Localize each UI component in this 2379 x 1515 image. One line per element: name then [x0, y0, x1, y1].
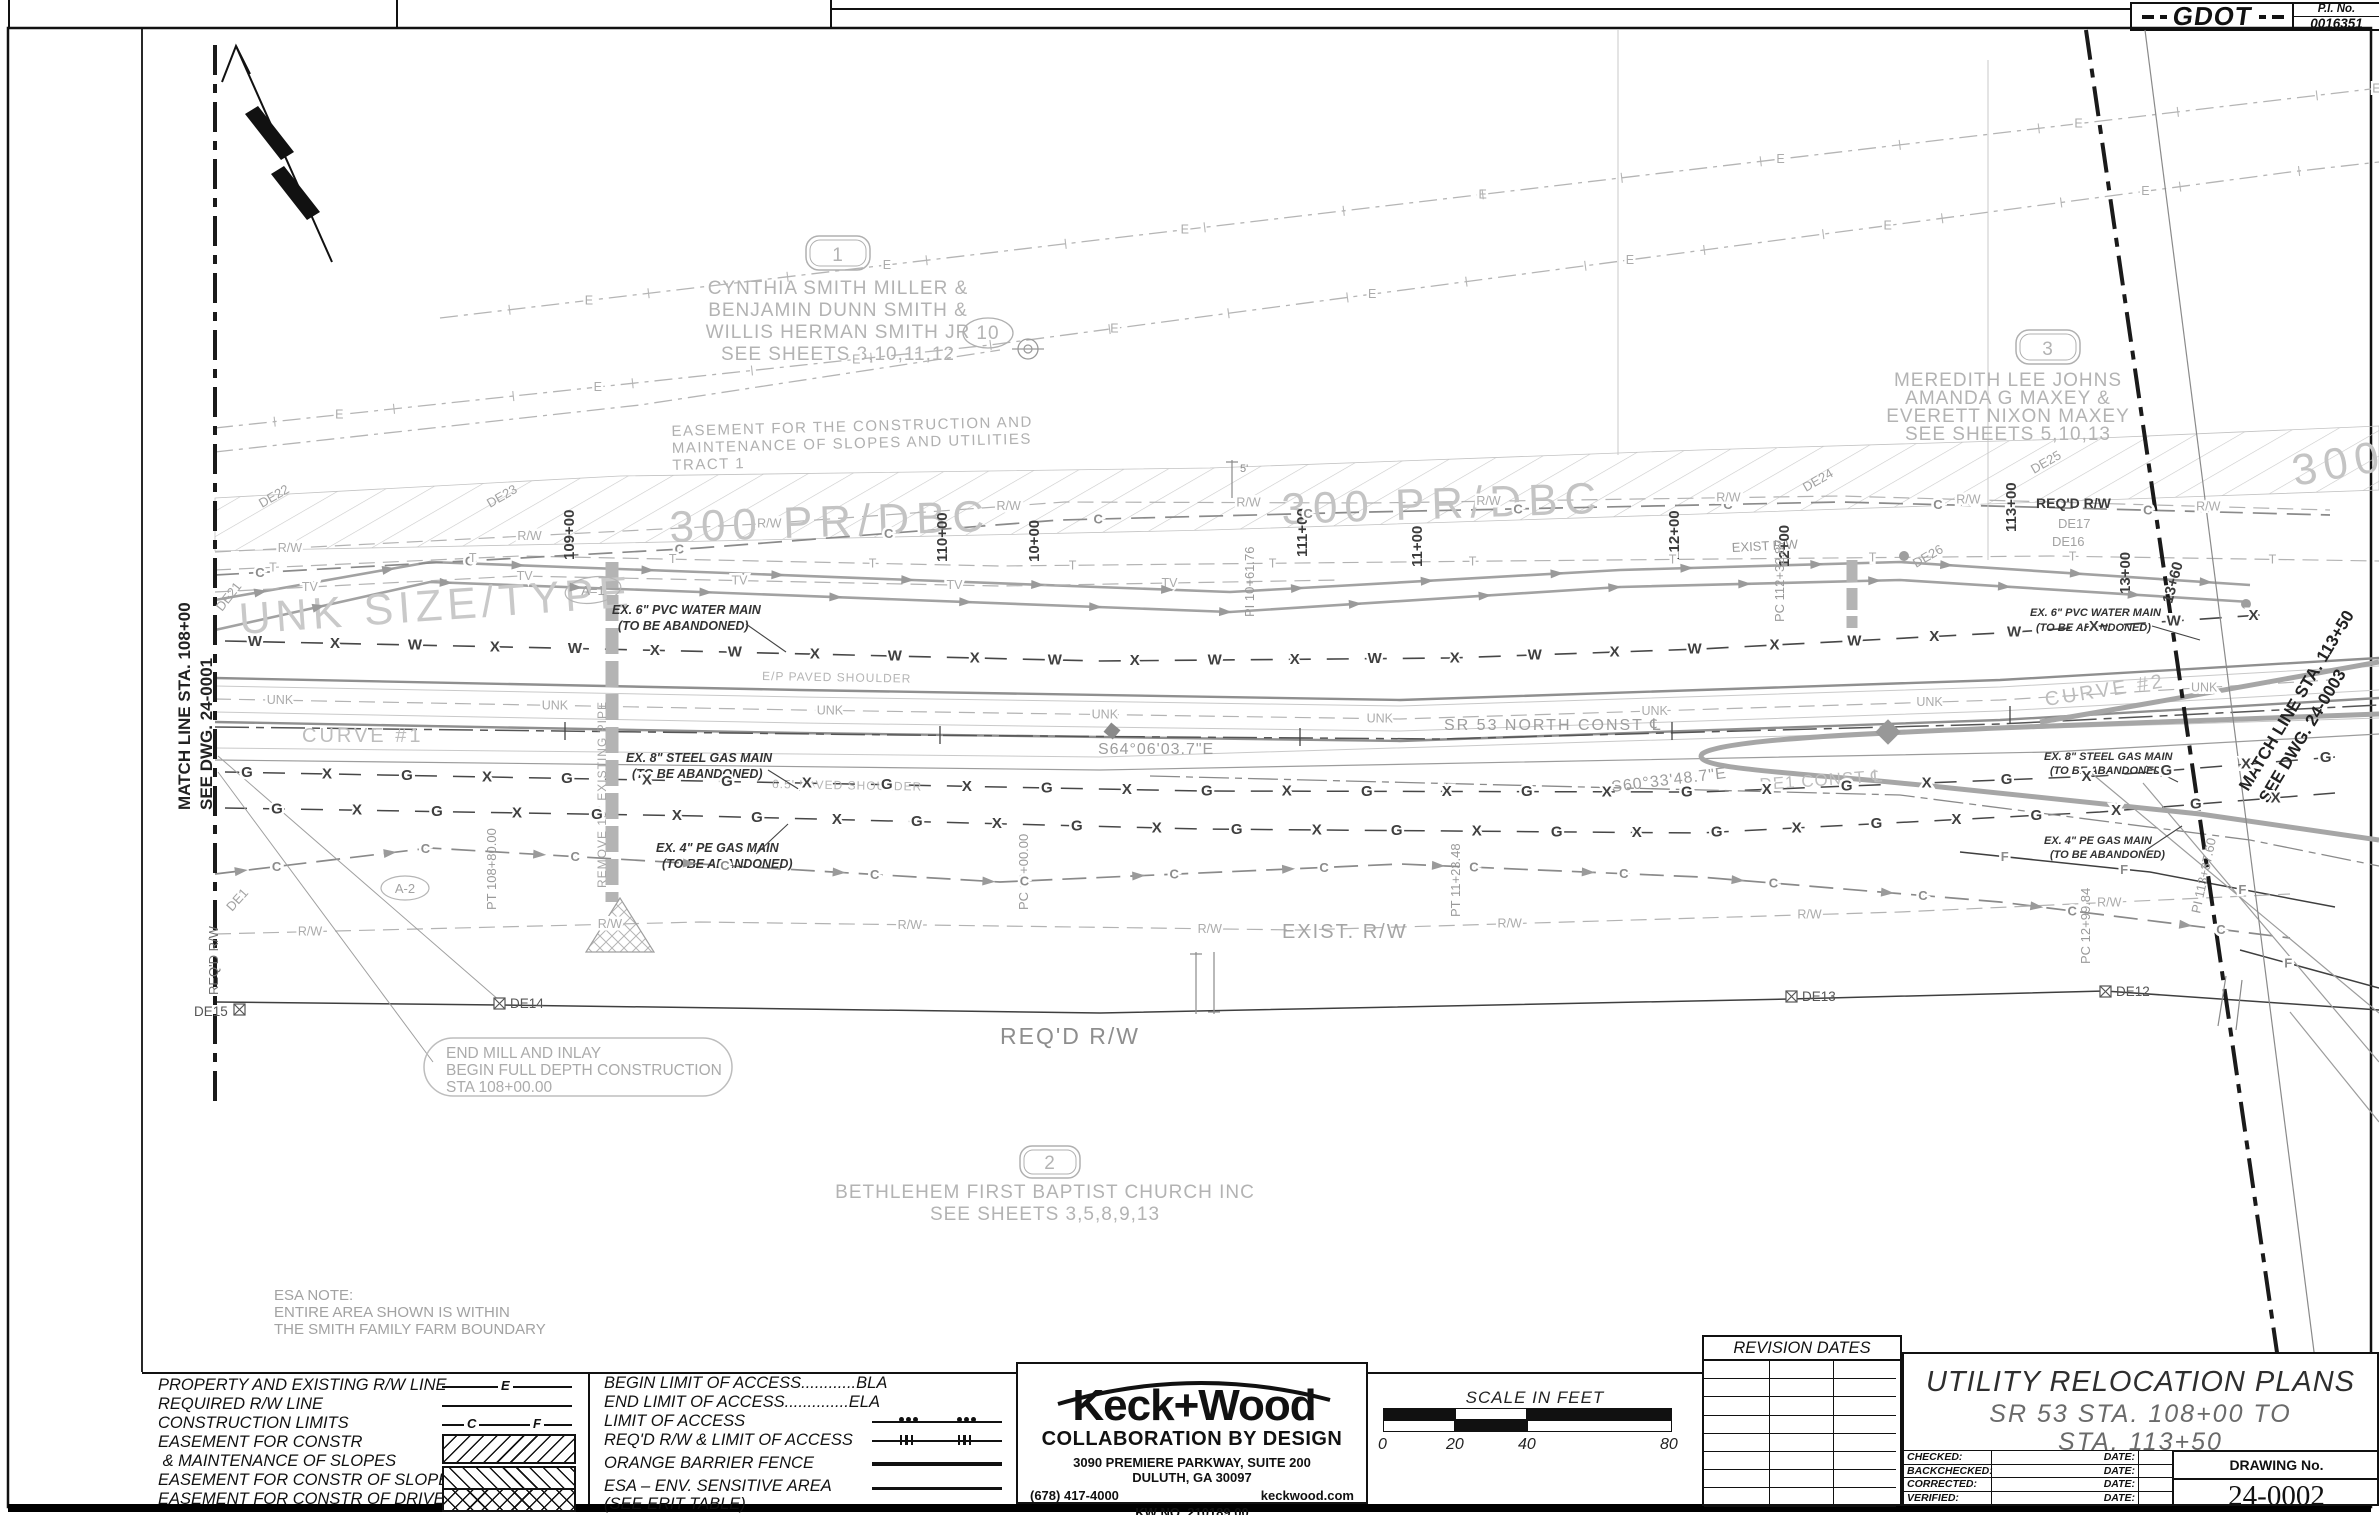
construction-limits-f: F [530, 1416, 544, 1431]
svg-text:UNK: UNK [1641, 704, 1668, 718]
parcel-2-sheets: SEE SHEETS 3,5,8,9,13 [930, 1204, 1160, 1225]
legend-access: BEGIN LIMIT OF ACCESS............BLA END… [588, 1374, 1018, 1504]
hatch-slopes-maint-symbol [442, 1434, 576, 1464]
svg-text:T: T [1469, 554, 1477, 568]
firm-address-1: 3090 PREMIERE PARKWAY, SUITE 200 [1018, 1455, 1366, 1470]
utility-dot [1899, 551, 1909, 561]
svg-text:PC 112+32.87: PC 112+32.87 [1772, 539, 1787, 622]
revision-cell [1834, 1488, 1896, 1506]
svg-text:R/W: R/W [598, 917, 623, 931]
svg-text:C: C [1303, 506, 1313, 521]
svg-text:R/W: R/W [1716, 491, 1741, 505]
svg-text:R/W: R/W [1476, 494, 1501, 508]
svg-text:C: C [884, 526, 894, 541]
revision-cell [1770, 1470, 1834, 1488]
svg-text:E: E [335, 408, 343, 422]
de13-label: DE13 [1802, 989, 1836, 1004]
svg-text:UNK: UNK [267, 693, 294, 707]
svg-text:W: W [1528, 646, 1543, 663]
svg-text:X: X [810, 646, 820, 663]
svg-text:G: G [2160, 762, 2172, 779]
svg-text:C: C [2143, 503, 2153, 518]
parcel-1-owner: CYNTHIA SMITH MILLER & [708, 278, 969, 299]
svg-text:W: W [568, 640, 583, 657]
revision-header: REVISION DATES [1702, 1335, 1902, 1359]
drawing-no-label: DRAWING No. [2174, 1452, 2379, 1480]
svg-text:R/W: R/W [1198, 922, 1223, 936]
svg-text:X: X [1951, 811, 1961, 828]
revision-cell [1834, 1470, 1896, 1488]
esa-note: ESA NOTE: ENTIRE AREA SHOWN IS WITHIN TH… [274, 1287, 546, 1338]
svg-text:R/W: R/W [2097, 895, 2122, 909]
scale-segment [1383, 1420, 1455, 1432]
remove-pipe-label: REMOVE 18" EXISTING PIPE [595, 701, 609, 888]
svg-text:T: T [669, 552, 677, 566]
scale-tick-80: 80 [1660, 1436, 1678, 1454]
firm-website: keckwood.com [1261, 1488, 1354, 1503]
svg-text:G: G [1521, 783, 1533, 800]
revision-cell [1770, 1488, 1834, 1506]
scale-segment [1527, 1420, 1672, 1432]
svg-text:R/W: R/W [757, 516, 782, 530]
legend-ela: END LIMIT OF ACCESS..............ELA [604, 1393, 880, 1412]
svg-text:X: X [1632, 824, 1642, 841]
parcel-3-sheets: SEE SHEETS 5,10,13 [1905, 424, 2111, 445]
svg-text:R/W: R/W [2196, 500, 2221, 514]
svg-text:C: C [1513, 501, 1523, 516]
svg-text:TV: TV [517, 569, 534, 583]
svg-text:G: G [2320, 749, 2332, 766]
svg-text:G: G [271, 800, 283, 817]
svg-text:R/W: R/W [996, 499, 1021, 513]
svg-text:W: W [728, 644, 743, 661]
svg-text:DE1: DE1 [223, 885, 251, 914]
scale-segment [1455, 1408, 1527, 1420]
svg-text:C: C [1918, 888, 1928, 903]
svg-text:TV: TV [946, 578, 963, 592]
svg-text:PC 12+99.84: PC 12+99.84 [2078, 888, 2093, 964]
svg-text:R/W: R/W [517, 529, 542, 543]
gas4-abandon-left: EX. 4" PE GAS MAIN [656, 841, 780, 855]
svg-text:T: T [2069, 549, 2077, 563]
loa-symbol-dots [956, 1417, 977, 1422]
svg-text:UNK: UNK [1367, 712, 1394, 726]
svg-text:E: E [1626, 253, 1634, 267]
svg-text:T: T [269, 560, 277, 574]
svg-text:T: T [1869, 551, 1877, 565]
svg-text:G: G [1841, 778, 1853, 795]
svg-text:X: X [2089, 618, 2099, 635]
svg-text:G: G [1681, 783, 1693, 800]
svg-text:T: T [1269, 556, 1277, 570]
svg-text:E: E [2372, 81, 2379, 95]
svg-text:X: X [490, 638, 500, 655]
svg-text:X: X [970, 649, 980, 666]
svg-text:T: T [1069, 558, 1077, 572]
reqd-loa-symbol [872, 1440, 1002, 1442]
svg-text:X: X [1792, 819, 1802, 836]
svg-text:X: X [2111, 802, 2121, 819]
title-block: UTILITY RELOCATION PLANS SR 53 STA. 108+… [1902, 1352, 2379, 1506]
svg-text:C: C [1469, 860, 1479, 875]
revision-cell [1704, 1488, 1770, 1506]
svg-text:F: F [2120, 862, 2128, 877]
revision-cell [1770, 1379, 1834, 1397]
svg-text:G: G [1391, 822, 1403, 839]
backchecked-date-label: DATE: [1992, 1465, 2139, 1478]
svg-text:R/W: R/W [278, 541, 303, 555]
dim-5ft: 5' [1240, 463, 1248, 475]
svg-text:C: C [1933, 497, 1943, 512]
construction-limits-symbol [442, 1424, 572, 1426]
gas4-abandon-right: EX. 4" PE GAS MAIN [2044, 835, 2153, 847]
svg-text:X: X [1312, 821, 1322, 838]
legend-property-rw: PROPERTY AND EXISTING R/W LINE [158, 1376, 447, 1395]
parcel-2-owner: BETHLEHEM FIRST BAPTIST CHURCH INC [835, 1182, 1255, 1203]
firm-tagline: COLLABORATION BY DESIGN [1018, 1428, 1366, 1451]
corrected-label: CORRECTED: [1904, 1478, 1992, 1491]
corrected-date-label: DATE: [1992, 1478, 2139, 1491]
scale-bar-area: SCALE IN FEET 0 20 40 80 [1368, 1374, 1702, 1504]
svg-text:C: C [421, 841, 431, 856]
svg-text:PC 10+00.00: PC 10+00.00 [1016, 834, 1031, 910]
scale-segment [1527, 1408, 1672, 1420]
svg-text:F: F [2001, 849, 2009, 864]
parcel-10-callout: 10 [963, 318, 1044, 359]
svg-text:W: W [1208, 652, 1223, 669]
svg-text:DE17: DE17 [2058, 516, 2091, 531]
svg-text:X: X [2271, 789, 2281, 806]
hatch-drives-symbol [442, 1488, 576, 1512]
svg-text:R/W: R/W [1797, 908, 1822, 922]
orange-fence-symbol [872, 1462, 1002, 1466]
svg-text:X: X [1610, 644, 1620, 661]
legend-easement-drives: EASEMENT FOR CONSTR OF DRIVES [158, 1490, 456, 1509]
sheet-subtitle-1: SR 53 STA. 108+00 TO [1904, 1400, 2377, 1429]
hatch-label-2: 300 PR/DBC [1281, 474, 1604, 534]
svg-text:G: G [2001, 771, 2013, 788]
svg-text:F: F [2238, 882, 2246, 897]
svg-text:110+00: 110+00 [934, 512, 951, 562]
firm-phone: (678) 417-4000 [1030, 1488, 1119, 1503]
svg-text:G: G [1361, 783, 1373, 800]
svg-text:T: T [869, 556, 877, 570]
svg-text:ESA NOTE:: ESA NOTE: [274, 1287, 353, 1304]
revision-cell [1834, 1397, 1896, 1415]
loa-symbol [872, 1421, 1002, 1423]
revision-cell [1704, 1470, 1770, 1488]
legend-lines: PROPERTY AND EXISTING R/W LINE REQUIRED … [142, 1374, 588, 1504]
checked-date-label: DATE: [1992, 1451, 2139, 1464]
revision-cell [1704, 1379, 1770, 1397]
legend-esa: ESA – ENV. SENSITIVE AREA [604, 1477, 832, 1496]
legend-bla: BEGIN LIMIT OF ACCESS............BLA [604, 1374, 887, 1393]
revision-table: REVISION DATES [1702, 1335, 1902, 1506]
svg-text:X: X [512, 804, 522, 821]
svg-text:E: E [1883, 219, 1891, 233]
svg-text:E: E [1368, 287, 1376, 301]
backchecked-label: BACKCHECKED: [1904, 1465, 1992, 1478]
svg-text:W: W [2007, 624, 2022, 641]
svg-text:G: G [401, 767, 413, 784]
legend-orange-fence: ORANGE BARRIER FENCE [604, 1454, 814, 1473]
svg-text:G: G [2030, 807, 2042, 824]
svg-text:X: X [482, 768, 492, 785]
svg-text:X: X [1602, 783, 1612, 800]
checked-label: CHECKED: [1904, 1451, 1992, 1464]
svg-text:G: G [591, 806, 603, 823]
parcel-10-number: 10 [976, 323, 999, 344]
reqd-loa-symbol-bars [956, 1435, 973, 1445]
svg-text:E: E [2074, 117, 2082, 131]
svg-text:E: E [1110, 321, 1118, 335]
svg-text:G: G [1711, 824, 1723, 841]
svg-text:TV: TV [732, 574, 749, 588]
svg-text:C: C [1769, 876, 1779, 891]
legend-easement-slopes: EASEMENT FOR CONSTR OF SLOPES [158, 1471, 460, 1490]
revision-cell [1770, 1397, 1834, 1415]
svg-text:G: G [721, 773, 733, 790]
svg-text:X: X [2241, 756, 2251, 773]
svg-text:13+00: 13+00 [2117, 552, 2134, 594]
revision-cell [1704, 1397, 1770, 1415]
revision-cell [1834, 1434, 1896, 1452]
svg-text:PT 11+23.48: PT 11+23.48 [1448, 843, 1463, 917]
revision-cell [1704, 1361, 1770, 1379]
svg-text:G: G [561, 770, 573, 787]
svg-text:E: E [883, 258, 891, 272]
hatch-slopes-symbol [442, 1466, 576, 1490]
plan-drawing: 1 CYNTHIA SMITH MILLER & BENJAMIN DUNN S… [0, 0, 2379, 1515]
svg-text:113+00: 113+00 [2003, 482, 2020, 532]
svg-text:X: X [1762, 781, 1772, 798]
svg-text:C: C [255, 565, 265, 580]
svg-text:UNK: UNK [1916, 695, 1943, 709]
reqd-rw-left-label: REQ'D R/W [206, 925, 221, 995]
svg-text:G: G [1201, 783, 1213, 800]
revision-cell [1770, 1416, 1834, 1434]
svg-text:UNK: UNK [2191, 681, 2218, 695]
svg-text:X: X [1442, 783, 1452, 800]
revision-cell [1834, 1379, 1896, 1397]
svg-text:PT 108+80.00: PT 108+80.00 [484, 828, 499, 910]
svg-text:UNK: UNK [1092, 708, 1119, 722]
legend-required-rw: REQUIRED R/W LINE [158, 1395, 323, 1414]
svg-text:TV: TV [302, 580, 319, 594]
svg-text:X: X [330, 635, 340, 652]
legend-loa: LIMIT OF ACCESS [604, 1412, 745, 1431]
parcel-2-callout: 2 BETHLEHEM FIRST BAPTIST CHURCH INC SEE… [835, 1146, 1255, 1225]
svg-text:10+00: 10+00 [1026, 520, 1043, 562]
revision-cell [1770, 1434, 1834, 1452]
svg-text:109+00: 109+00 [561, 510, 578, 560]
svg-text:X: X [1929, 628, 1939, 645]
curve1-label: CURVE #1 [302, 725, 423, 747]
svg-text:G: G [1551, 823, 1563, 840]
svg-text:W: W [408, 637, 423, 654]
legend-easement-cms: EASEMENT FOR CONSTR [158, 1433, 362, 1452]
svg-text:C: C [1619, 866, 1629, 881]
verified-date-label: DATE: [1992, 1492, 2139, 1505]
parcel-1-callout: 1 CYNTHIA SMITH MILLER & BENJAMIN DUNN S… [706, 236, 971, 365]
legend-easement-cms2: & MAINTENANCE OF SLOPES [158, 1452, 396, 1471]
svg-text:A-2: A-2 [395, 881, 415, 896]
drawing-no: 24-0002 [2174, 1480, 2379, 1513]
svg-text:R/W: R/W [1498, 917, 1523, 931]
bearing-1: S64°06'03.7"E [1098, 741, 1214, 758]
svg-text:E: E [1181, 223, 1189, 237]
de15-label: DE15 [194, 1004, 228, 1019]
water-abandon-left: EX. 6" PVC WATER MAIN [612, 603, 762, 617]
scale-tick-20: 20 [1446, 1436, 1464, 1454]
firm-kw-number: KW NO. 210189.00 [1018, 1505, 1366, 1515]
svg-text:C: C [272, 859, 282, 874]
legend-construction-limits: CONSTRUCTION LIMITS [158, 1414, 349, 1433]
svg-text:F: F [2284, 956, 2292, 971]
svg-text:T: T [1669, 552, 1677, 566]
scale-segment [1455, 1420, 1527, 1432]
svg-text:C: C [1170, 867, 1180, 882]
revision-grid [1702, 1359, 1902, 1506]
svg-text:W: W [888, 648, 903, 665]
svg-text:X: X [672, 807, 682, 824]
de14-label: DE14 [510, 996, 544, 1011]
svg-text:THE SMITH FAMILY FARM BOUNDARY: THE SMITH FAMILY FARM BOUNDARY [274, 1321, 546, 1338]
svg-text:X: X [1922, 774, 1932, 791]
svg-text:X: X [832, 811, 842, 828]
svg-text:W: W [1368, 650, 1383, 667]
reqd-loa-symbol-bars [898, 1435, 915, 1445]
parcel-2-number: 2 [1044, 1153, 1056, 1174]
svg-text:E: E [852, 352, 860, 366]
svg-text:X: X [802, 775, 812, 792]
svg-text:G: G [431, 803, 443, 820]
sheet-title: UTILITY RELOCATION PLANS [1904, 1366, 2377, 1399]
svg-text:X: X [1152, 819, 1162, 836]
svg-text:(TO BE ABANDONED): (TO BE ABANDONED) [618, 619, 749, 633]
svg-text:X: X [962, 778, 972, 795]
svg-text:E: E [585, 293, 593, 307]
parcel-1-owner: WILLIS HERMAN SMITH JR [706, 322, 971, 343]
svg-text:11+00: 11+00 [1409, 526, 1426, 567]
svg-text:(TO BE ABANDONED): (TO BE ABANDONED) [2050, 849, 2165, 861]
svg-text:END MILL AND INLAY: END MILL AND INLAY [446, 1045, 601, 1062]
svg-text:X: X [2249, 607, 2259, 624]
esa-symbol [872, 1487, 1002, 1490]
north-arrow [222, 46, 332, 262]
svg-text:Keck+Wood: Keck+Wood [1072, 1381, 1315, 1428]
parcel-3-number: 3 [2042, 339, 2054, 360]
svg-text:DE16: DE16 [2052, 534, 2085, 549]
svg-text:G: G [881, 776, 893, 793]
svg-text:C: C [1020, 873, 1030, 888]
revision-cell [1704, 1416, 1770, 1434]
verified-value [2139, 1492, 2172, 1505]
scale-title: SCALE IN FEET [1368, 1388, 1702, 1408]
match-left-line1: MATCH LINE STA. 108+00 [175, 602, 194, 810]
revision-cell [1770, 1361, 1834, 1379]
svg-text:C: C [2067, 903, 2077, 918]
svg-text:X: X [1450, 649, 1460, 666]
svg-text:C: C [2216, 922, 2226, 937]
svg-text:T: T [2269, 552, 2277, 566]
svg-text:X: X [642, 771, 652, 788]
svg-text:C: C [720, 858, 730, 873]
svg-text:E: E [594, 380, 602, 394]
svg-text:TRACT 1: TRACT 1 [672, 455, 745, 474]
parcel-3-callout: 3 MEREDITH LEE JOHNS AMANDA G MAXEY & EV… [1886, 330, 2130, 445]
svg-text:R/W: R/W [898, 918, 923, 932]
firm-address-2: DULUTH, GA 30097 [1018, 1470, 1366, 1485]
svg-text:G: G [241, 764, 253, 781]
svg-text:X: X [1290, 651, 1300, 668]
svg-text:W: W [1688, 641, 1703, 658]
svg-text:R/W: R/W [298, 925, 323, 939]
de12-label: DE12 [2116, 984, 2150, 999]
plan-sheet: GDOT P.I. No. 0016351 [0, 0, 2379, 1515]
reqd-rw-label: REQ'D R/W [1000, 1023, 1140, 1049]
gas8-abandon-right: EX. 8" STEEL GAS MAIN [2044, 751, 2174, 763]
revision-cell [1834, 1452, 1896, 1470]
corrected-value [2139, 1478, 2172, 1491]
revision-cell [1704, 1452, 1770, 1470]
svg-text:X: X [1769, 637, 1779, 654]
svg-text:A=1: A=1 [581, 583, 605, 598]
legend-reqd-loa: REQ'D R/W & LIMIT OF ACCESS [604, 1431, 853, 1450]
svg-text:W: W [1048, 651, 1063, 668]
svg-text:G: G [751, 809, 763, 826]
svg-text:E: E [2141, 184, 2149, 198]
svg-text:W: W [248, 633, 263, 650]
svg-text:G: G [1041, 779, 1053, 796]
loa-symbol-dots [898, 1417, 919, 1422]
reqd-rw-right-label: REQ'D R/W [2036, 495, 2112, 511]
svg-text:PI 10+61.76: PI 10+61.76 [1242, 547, 1257, 617]
firm-logo: Keck+Wood [1018, 1370, 1370, 1428]
revision-cell [1704, 1434, 1770, 1452]
easement-note: EASEMENT FOR THE CONSTRUCTION AND MAINTE… [671, 414, 1034, 474]
svg-text:G: G [2190, 796, 2202, 813]
svg-text:X: X [1130, 652, 1140, 669]
scale-segment [1383, 1408, 1455, 1420]
svg-text:STA 108+00.00: STA 108+00.00 [446, 1079, 553, 1096]
match-left-line2: SEE DWG. 24-0001 [197, 658, 216, 810]
svg-text:G: G [911, 813, 923, 830]
revision-cell [1834, 1361, 1896, 1379]
ep-shoulder-label: E/P PAVED SHOULDER [762, 669, 912, 686]
svg-text:C: C [1093, 512, 1103, 527]
sr53-centerline-label: SR 53 NORTH CONST ℄ [1444, 717, 1662, 734]
svg-text:G: G [1231, 821, 1243, 838]
verified-label: VERIFIED: [1904, 1492, 1992, 1505]
svg-text:W: W [1847, 632, 1862, 649]
svg-text:R/W: R/W [1956, 493, 1981, 507]
svg-text:ENTIRE AREA SHOWN IS WITHIN: ENTIRE AREA SHOWN IS WITHIN [274, 1304, 510, 1321]
svg-text:G: G [1071, 817, 1083, 834]
svg-text:BEGIN FULL DEPTH CONSTRUCTION: BEGIN FULL DEPTH CONSTRUCTION [446, 1062, 722, 1079]
required-rw-symbol [442, 1405, 572, 1407]
parcel-1-number: 1 [832, 245, 844, 266]
scale-tick-40: 40 [1518, 1436, 1536, 1454]
svg-text:X: X [352, 802, 362, 819]
svg-text:W: W [2167, 612, 2182, 629]
svg-text:G: G [1871, 815, 1883, 832]
paved-shoulder-label: 6.5' PAVED SHOULDER [772, 777, 922, 794]
parcel-1-owner: BENJAMIN DUNN SMITH & [708, 300, 968, 321]
construction-limits-c: C [464, 1416, 479, 1431]
gas8-abandon-left: EX. 8" STEEL GAS MAIN [626, 751, 773, 765]
checked-value [2139, 1451, 2172, 1464]
